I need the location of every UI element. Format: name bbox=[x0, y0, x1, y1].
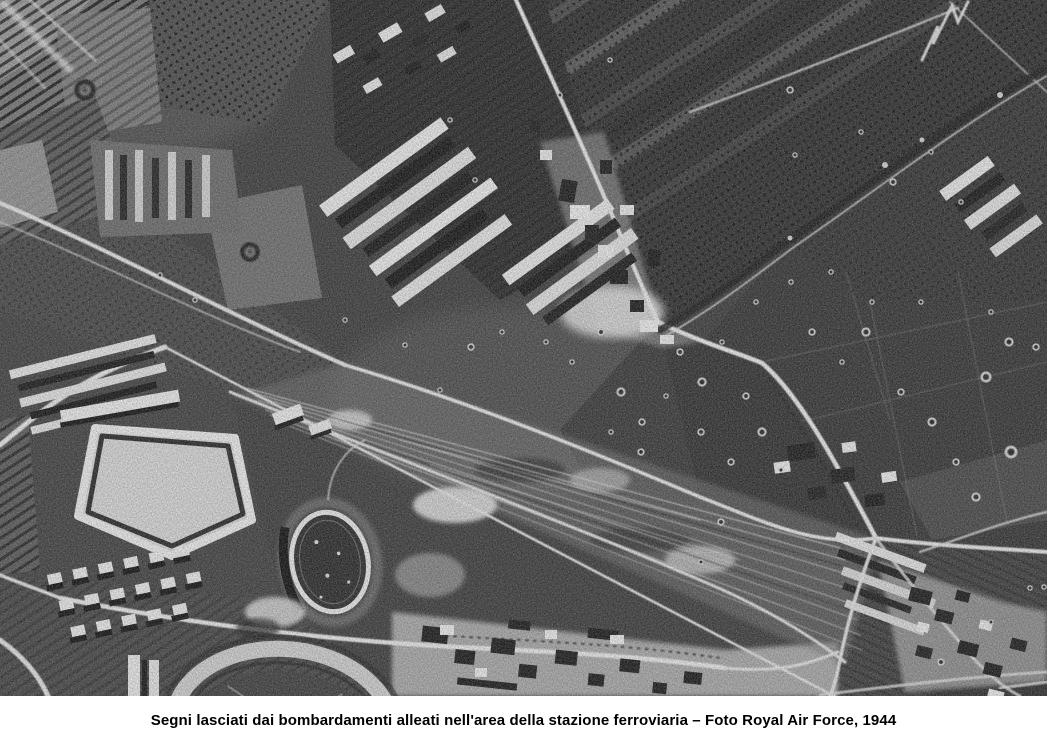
page: Segni lasciati dai bombardamenti alleati… bbox=[0, 0, 1047, 744]
aerial-photo bbox=[0, 0, 1047, 696]
photo-caption: Segni lasciati dai bombardamenti alleati… bbox=[151, 712, 897, 729]
caption-strip: Segni lasciati dai bombardamenti alleati… bbox=[0, 696, 1047, 744]
